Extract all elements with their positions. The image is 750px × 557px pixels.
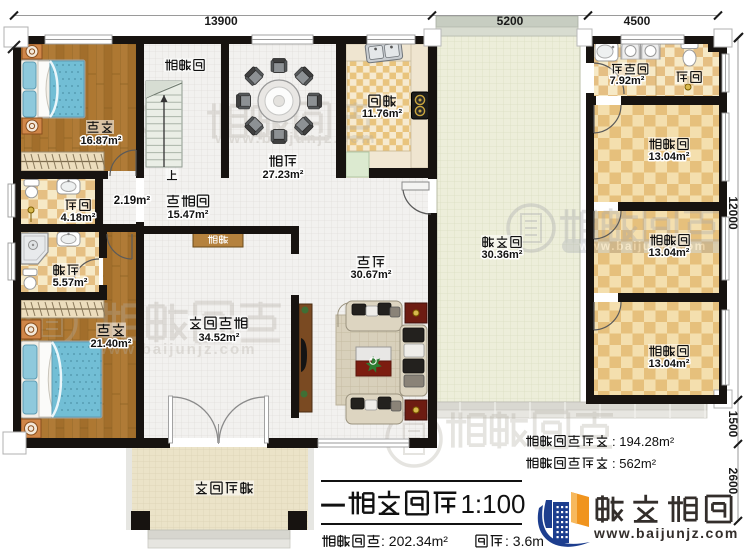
- svg-text:15.47m²: 15.47m²: [168, 209, 209, 221]
- svg-text:13900: 13900: [204, 14, 238, 28]
- svg-text:30.67m²: 30.67m²: [351, 269, 392, 281]
- svg-text:13.04m²: 13.04m²: [649, 151, 690, 163]
- svg-text:: 562m²: : 562m²: [612, 456, 657, 471]
- svg-text:: 202.34m²: : 202.34m²: [381, 533, 448, 549]
- svg-text:5.57m²: 5.57m²: [53, 277, 88, 289]
- svg-text:16.87m²: 16.87m²: [81, 135, 122, 147]
- svg-text:www.beijunjz.com: www.beijunjz.com: [214, 130, 376, 147]
- svg-text:13.04m²: 13.04m²: [649, 358, 690, 370]
- svg-text:21.40m²: 21.40m²: [91, 338, 132, 350]
- svg-text:5200: 5200: [497, 14, 524, 28]
- svg-text:1500: 1500: [726, 411, 740, 438]
- svg-text:: 194.28m²: : 194.28m²: [612, 434, 675, 449]
- svg-text:www.baijunjz.com: www.baijunjz.com: [593, 525, 739, 541]
- svg-text:30.36m²: 30.36m²: [482, 249, 523, 261]
- svg-text:1:100: 1:100: [460, 489, 525, 519]
- svg-text:4.18m²: 4.18m²: [61, 212, 96, 224]
- svg-text:4500: 4500: [624, 14, 651, 28]
- svg-text:13.04m²: 13.04m²: [649, 247, 690, 259]
- svg-text:7.92m²: 7.92m²: [610, 75, 645, 87]
- svg-text:27.23m²: 27.23m²: [263, 169, 304, 181]
- svg-text:12000: 12000: [726, 196, 740, 230]
- svg-text:2600: 2600: [726, 468, 740, 495]
- svg-text:: 3.6m: : 3.6m: [505, 533, 544, 549]
- svg-text:2.19m²: 2.19m²: [114, 195, 151, 207]
- svg-text:34.52m²: 34.52m²: [199, 332, 240, 344]
- svg-text:11.76m²: 11.76m²: [362, 108, 403, 120]
